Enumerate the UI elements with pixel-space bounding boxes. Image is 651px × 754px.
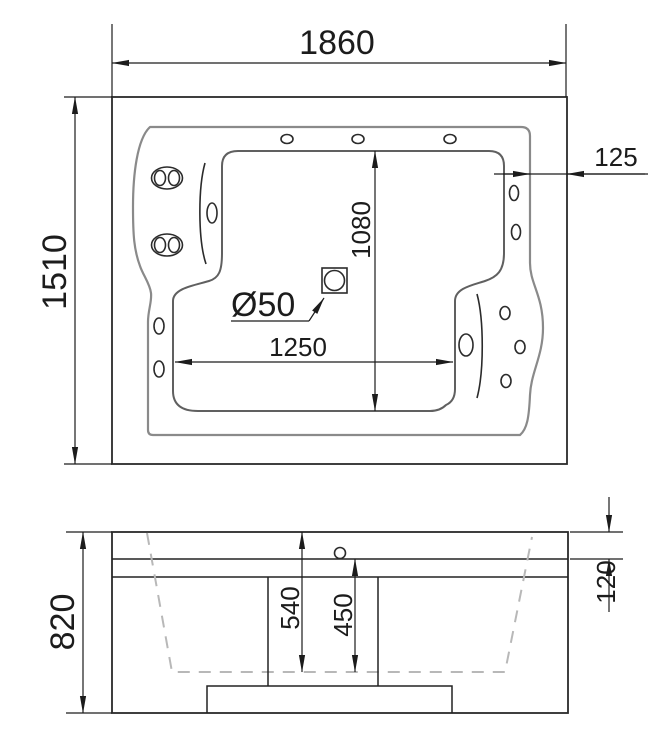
dim-overall-length-label: 1860 <box>299 24 375 62</box>
top-rim-jet <box>281 135 293 144</box>
dim-edge-offset-label: 125 <box>594 142 637 172</box>
dim-basin-depth-label: 450 <box>328 593 358 636</box>
callout-drain-diameter: Ø50 <box>231 286 324 324</box>
drain-plate <box>322 268 347 293</box>
right-rim-jet <box>510 186 519 201</box>
drain <box>322 268 347 293</box>
basin-outline <box>173 151 504 411</box>
right-seat-jet <box>501 375 511 388</box>
dim-basin-width: 1080 <box>346 151 376 411</box>
right-lumbar-jet <box>459 334 473 356</box>
top-rim-jet <box>352 135 364 144</box>
right-seat-jet <box>500 307 510 320</box>
dim-overall-width: 1510 <box>36 97 112 464</box>
jet-capsule <box>152 234 183 256</box>
dim-overall-height-label: 820 <box>44 594 82 651</box>
dim-basin-width-label: 1080 <box>346 201 376 259</box>
jet-nozzle <box>169 171 180 186</box>
drain-diameter-label: Ø50 <box>231 286 295 324</box>
left-lumbar-jet <box>207 203 217 223</box>
jet-nozzle <box>155 171 166 186</box>
jet-nozzle <box>155 238 166 253</box>
left-backrest-contour <box>200 163 206 264</box>
leader-arrow <box>309 298 324 321</box>
jet-nozzle <box>169 238 180 253</box>
drain-hole <box>325 271 345 291</box>
dim-edge-offset: 125 <box>494 142 648 174</box>
dim-overall-height: 820 <box>44 532 112 713</box>
headrest-jet-lower <box>152 234 183 256</box>
dim-basin-depth: 450 <box>328 559 358 672</box>
dim-rim-band-height: 120 <box>570 497 623 612</box>
dim-basin-length: 1250 <box>175 332 453 362</box>
left-ledge-jet <box>154 318 164 334</box>
rim-outline <box>133 127 543 435</box>
dim-depth-from-top: 540 <box>275 532 305 672</box>
dim-basin-length-label: 1250 <box>269 332 327 362</box>
right-seat-jet <box>515 341 525 354</box>
right-rim-jet <box>512 225 521 240</box>
drawing-svg: 1860 1510 125 1080 1250 Ø50 <box>0 0 651 754</box>
plinth <box>207 686 452 713</box>
dim-depth-from-top-label: 540 <box>275 586 305 629</box>
top-rim-jet <box>444 135 456 144</box>
left-ledge-jet <box>154 361 164 377</box>
headrest-jet-upper <box>152 167 183 189</box>
overflow-hole <box>335 548 346 559</box>
technical-drawing-bathtub: 1860 1510 125 1080 1250 Ø50 <box>0 0 651 754</box>
dim-overall-length: 1860 <box>112 24 566 97</box>
right-backrest-contour <box>477 294 482 398</box>
dim-overall-width-label: 1510 <box>36 234 74 310</box>
side-view: 820 540 450 120 <box>44 497 623 713</box>
dim-rim-band-height-label: 120 <box>591 560 621 603</box>
jet-capsule <box>152 167 183 189</box>
deck-outline <box>112 97 567 464</box>
top-view: 1860 1510 125 1080 1250 Ø50 <box>36 24 648 464</box>
